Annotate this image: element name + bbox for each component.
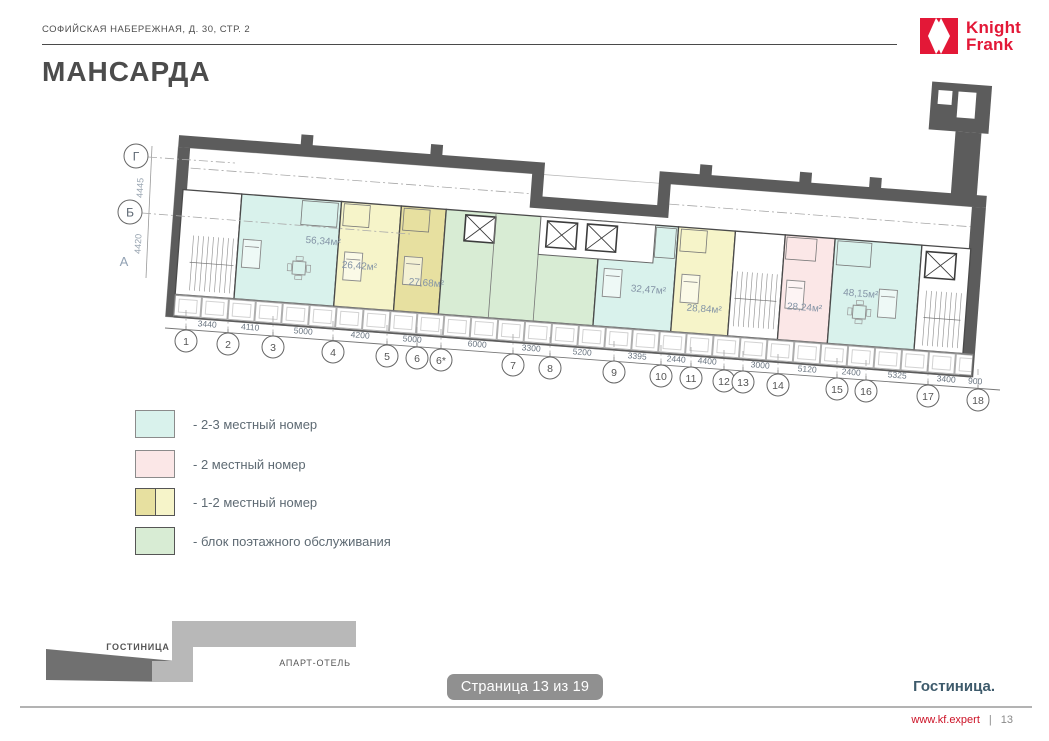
grid-column: 16 xyxy=(855,380,877,402)
grid-column-label: 5 xyxy=(384,351,390,363)
grid-column-label: 6* xyxy=(436,355,446,367)
grid-column: 9 xyxy=(603,361,625,383)
grid-dimension: 4110 xyxy=(241,321,260,332)
axis-label: Г xyxy=(133,150,140,164)
grid-dimension: 4200 xyxy=(350,329,370,340)
grid-dimension: 900 xyxy=(968,375,983,386)
grid-dimension: 5000 xyxy=(402,333,422,344)
grid-column-label: 1 xyxy=(183,336,189,348)
legend-swatch-cyan xyxy=(135,410,175,438)
grid-column: 1 xyxy=(175,330,197,352)
grid-column-label: 9 xyxy=(611,367,617,379)
grid-dimension: 2400 xyxy=(841,366,861,377)
grid-column: 3 xyxy=(262,336,284,358)
grid-column: 6* xyxy=(430,349,452,371)
legend-swatch-green xyxy=(135,527,175,555)
right-tower xyxy=(924,81,992,199)
grid-column: 14 xyxy=(767,374,789,396)
grid-dimension: 4400 xyxy=(697,355,717,366)
grid-dimension: 5000 xyxy=(293,325,313,336)
legend-label: - 1-2 местный номер xyxy=(193,495,317,510)
row-dim-label: 4420 xyxy=(132,234,143,255)
footer-page-number: 13 xyxy=(1001,714,1013,726)
elevator-icon xyxy=(925,252,957,280)
grid-column-label: 3 xyxy=(270,342,276,354)
grid-column-label: 18 xyxy=(972,395,984,407)
footer-divider xyxy=(20,706,1032,708)
grid-column-label: 15 xyxy=(831,384,843,396)
axis-label: А xyxy=(120,254,129,269)
legend-item: - 2 местный номер xyxy=(135,450,306,478)
grid-column-label: 13 xyxy=(737,377,749,389)
grid-column-label: 10 xyxy=(655,371,667,383)
grid-dimension: 3400 xyxy=(936,373,956,384)
grid-dimension: 5120 xyxy=(797,363,817,374)
minimap-apart-shape xyxy=(172,621,193,682)
grid-dimension: 2440 xyxy=(666,353,686,364)
minimap-apart-label: АПАРТ-ОТЕЛЬ xyxy=(279,658,351,668)
legend-label: - блок поэтажного обслуживания xyxy=(193,534,391,549)
footer-site-link[interactable]: www.kf.expert xyxy=(911,714,979,726)
grid-column-label: 16 xyxy=(860,386,872,398)
grid-dimension: 3395 xyxy=(627,350,647,361)
axis-label: Б xyxy=(126,206,134,220)
grid-column: 7 xyxy=(502,354,524,376)
grid-column: 18 xyxy=(967,389,989,411)
grid-column-label: 6 xyxy=(414,353,420,365)
grid-column-label: 7 xyxy=(510,360,516,372)
grid-column-label: 2 xyxy=(225,339,231,351)
footer-separator: | xyxy=(989,714,992,726)
grid-dimension: 5200 xyxy=(572,346,592,357)
stairwell-left xyxy=(175,190,242,299)
grid-dimension: 5325 xyxy=(887,369,907,380)
legend-item: - блок поэтажного обслуживания xyxy=(135,527,391,555)
page-canvas: СОФИЙСКАЯ НАБЕРЕЖНАЯ, Д. 30, СТР. 2 Knig… xyxy=(0,0,1049,741)
grid-column-label: 4 xyxy=(330,347,336,359)
legend-item: - 1-2 местный номер xyxy=(135,488,317,516)
legend-label: - 2-3 местный номер xyxy=(193,417,317,432)
grid-column: 10 xyxy=(650,365,672,387)
grid-dimension: 3440 xyxy=(197,318,217,329)
grid-dimension: 6000 xyxy=(467,338,487,349)
legend-swatch-yellow xyxy=(135,488,175,516)
floorplan-svg: 56,34м² 26,42м² 27,68м² 32,47м² 28,84м² … xyxy=(0,0,1049,741)
room-26-42 xyxy=(334,202,402,311)
legend-label: - 2 местный номер xyxy=(193,457,306,472)
grid-column-label: 14 xyxy=(772,380,784,392)
grid-column: 5 xyxy=(376,345,398,367)
grid-column-label: 11 xyxy=(686,373,697,385)
grid-column-label: 17 xyxy=(922,391,934,403)
grid-dimension: 3000 xyxy=(750,359,770,370)
grid-column: 13 xyxy=(732,371,754,393)
row-axis-line xyxy=(146,146,152,278)
legend-item: - 2-3 местный номер xyxy=(135,410,317,438)
minimap: ГОСТИНИЦА АПАРТ-ОТЕЛЬ xyxy=(46,621,356,682)
grid-column: 15 xyxy=(826,378,848,400)
grid-column: 11 xyxy=(680,367,702,389)
grid-column-label: 8 xyxy=(547,363,553,375)
grid-column-label: 12 xyxy=(718,376,730,388)
minimap-connector-shape xyxy=(152,661,174,682)
grid-dimension: 3300 xyxy=(521,342,541,353)
grid-column: 4 xyxy=(322,341,344,363)
row-dim-label: 4445 xyxy=(134,178,145,199)
footer-section-label: Гостиница. xyxy=(913,678,995,695)
legend-swatch-pink xyxy=(135,450,175,478)
elevator-icon xyxy=(464,215,496,243)
page-indicator-pill: Страница 13 из 19 xyxy=(447,674,603,700)
building-band: 56,34м² 26,42м² 27,68м² 32,47м² 28,84м² … xyxy=(165,25,995,377)
grid-column: 8 xyxy=(539,357,561,379)
footer-info: www.kf.expert | 13 xyxy=(911,714,1013,726)
elevator-icon xyxy=(586,224,618,252)
grid-column: 17 xyxy=(917,385,939,407)
elevator-icon xyxy=(546,221,578,249)
grid-column: 6 xyxy=(406,347,428,369)
grid-column: 2 xyxy=(217,333,239,355)
minimap-apart-shape xyxy=(193,621,356,647)
minimap-hotel-label: ГОСТИНИЦА xyxy=(106,642,169,652)
